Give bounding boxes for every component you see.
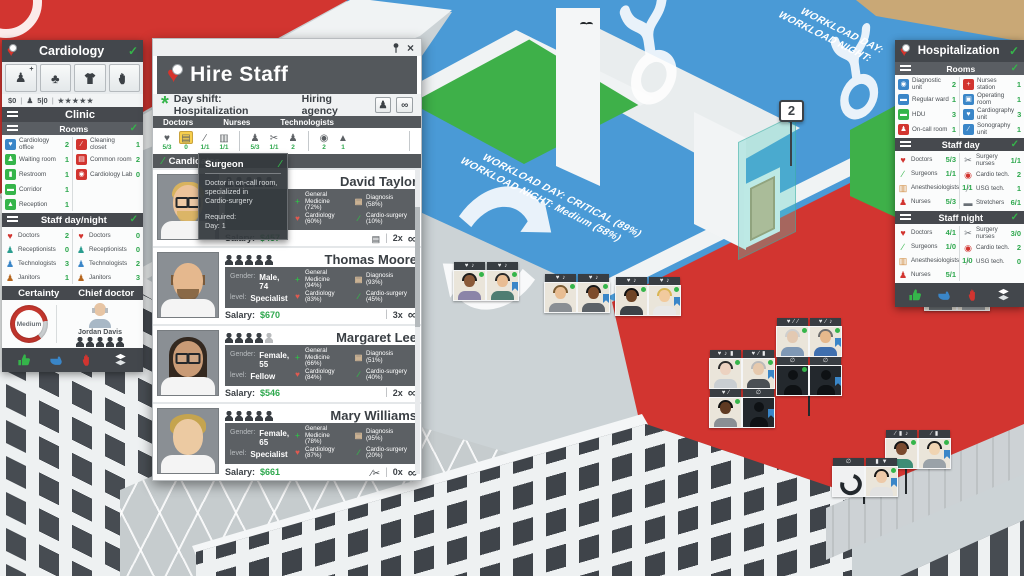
room-count: 1 (65, 170, 69, 179)
slot-icon: ♟ (287, 131, 300, 144)
mini-icon: ∅ (756, 389, 761, 397)
mini-icon: ♪ (724, 350, 727, 358)
staff-count: 5/3 (946, 155, 956, 164)
staff-type-slot[interactable]: ♥ 5/3 (159, 131, 175, 151)
staff-count: 1 (65, 273, 69, 282)
slot-count: 1/1 (219, 144, 228, 151)
staff-row: ♟ Nurses 5/3 (898, 195, 956, 208)
room-count-badge[interactable]: 2 (779, 100, 804, 122)
room-label: Cardiology Lab (90, 171, 133, 178)
skill: ♥ Cardiology(84%) (293, 368, 351, 383)
staff-card-icons: ∕▮ (919, 430, 950, 438)
bookmark-icon (603, 294, 609, 303)
status-dot (802, 367, 807, 372)
approve-button[interactable] (907, 287, 925, 303)
staff-icon: ♟ (5, 259, 15, 269)
slot-icon: ◉ (318, 131, 331, 144)
check-icon: ✓ (1011, 140, 1019, 150)
staff-count: 1/1 (1011, 156, 1021, 165)
mini-icon: ♥ (752, 350, 756, 358)
list-icon (900, 141, 911, 149)
staff-day-header[interactable]: Staff day ✓ (895, 138, 1024, 151)
room-label: Common room (90, 156, 133, 163)
staff-card-icons: ♥∕∕ (777, 318, 808, 326)
room-count: 1 (65, 185, 69, 194)
stop-hand-button[interactable] (80, 352, 98, 368)
candidate-bio: Gender:Male, 74 level:Specialist (230, 270, 288, 305)
staff-icon: ♟ (5, 245, 15, 255)
status-dot (891, 468, 896, 473)
staff-icon: ▬ (963, 198, 973, 208)
mini-icon: ♪ (633, 277, 636, 285)
mini-icon: ♥ (819, 318, 823, 326)
hire-staff-dialog: × ♥ Hire Staff * Day shift: Hospitalizat… (152, 38, 422, 481)
candidate-card[interactable]: Thomas Moore Gender:Male, 74 level:Speci… (153, 246, 421, 324)
layers-button[interactable] (112, 352, 130, 368)
mini-icon: ∕ (895, 430, 896, 438)
staff-row: ♥ Doctors 5/3 (898, 153, 956, 166)
hand-icon (118, 72, 131, 85)
staff-portrait[interactable] (616, 286, 647, 315)
slot-icon: ♥ (162, 131, 172, 144)
staff-cluster[interactable]: ♥∕∕∅♥∕♪∅ (777, 318, 841, 395)
uniform-button[interactable] (74, 64, 106, 92)
dialog-header: ♥ Hire Staff (157, 56, 417, 94)
room-row[interactable]: ▤ Common room 2 (76, 152, 140, 166)
room-row[interactable]: ▬ Corridor 1 (5, 182, 69, 196)
staff-label: Surgery nurses (976, 226, 1008, 240)
dialog-scrollbar[interactable] (415, 169, 420, 474)
slot-icon: ✂ (268, 131, 280, 144)
tab[interactable]: Doctors (163, 118, 193, 127)
staff-type-slot[interactable]: ∕ 1/1 (197, 131, 213, 151)
room-icon: ▬ (898, 109, 909, 120)
staff-row: ✂ Surgery nurses 1/1 (963, 153, 1021, 167)
rooms-list: ♥ Cardiology office 2 ♟ Waiting room 1 ▮… (2, 135, 143, 213)
staff-portrait[interactable] (810, 327, 841, 356)
staff-portrait[interactable] (833, 467, 864, 496)
staff-card-icons: ∅ (777, 357, 808, 365)
staff-count: 0 (136, 231, 140, 240)
staff-icon: ∕ (898, 242, 908, 252)
staff-label: Doctors (18, 232, 62, 239)
staff-count: 2 (1017, 243, 1021, 252)
staff-cluster[interactable]: ∅▮▼ (833, 458, 897, 496)
staff-type-slot[interactable]: ♟ 5/3 (247, 131, 263, 151)
staff-label: Stretchers (976, 199, 1008, 206)
skill: ∕ Cardio-surgery(40%) (354, 368, 412, 383)
staff-type-row: ♥ 5/3 ▤ 0 ∕ 1/1 ▥ 1/1 (153, 128, 421, 154)
staff-count: 2 (1017, 170, 1021, 179)
clinic-header[interactable]: Clinic (2, 107, 143, 122)
mini-icon: ▮ (935, 430, 938, 438)
room-label: Operating room (977, 92, 1014, 106)
skill: ▤ Diagnosis(58%) (354, 192, 412, 212)
staff-label: Surgeons (911, 243, 943, 250)
certainty-chief-header: Certainty Chief doctor (2, 286, 143, 300)
staff-portrait[interactable] (810, 366, 841, 395)
staff-count: 1/1 (946, 169, 956, 178)
staff-icon: ♥ (76, 231, 86, 241)
staff-card-icons: ♥♪▮ (710, 350, 741, 358)
room-count: 1 (1017, 95, 1021, 104)
mini-icon: ♥ (660, 277, 664, 285)
staff-header[interactable]: Staff day/night ✓ (2, 213, 143, 227)
room-row[interactable]: + Nurses station 1 (963, 77, 1021, 91)
rooms-list: ◉ Diagnostic unit 2 ▬ Regular ward 1 ▬ H… (895, 75, 1024, 138)
room-row[interactable]: ♥ Cardiology office 2 (5, 137, 69, 151)
staff-label: Cardio tech. (976, 171, 1014, 178)
staff-icon: ♥ (5, 231, 15, 241)
room-icon: ♥ (963, 109, 974, 120)
department-stats: $0 | ♟ 5|0 | ★★★★★ (2, 94, 143, 107)
game-screen: WORKLOAD DAY: CRITICAL (89%) WORKLOAD NI… (0, 0, 1024, 576)
room-count: 2 (65, 140, 69, 149)
mini-icon: ▼ (882, 458, 888, 466)
status-dot (802, 328, 807, 333)
staff-row: ♟ Janitors 3 (76, 271, 140, 284)
status-dot (735, 399, 740, 404)
skill: + General Medicine(94%) (293, 270, 351, 290)
staff-cluster[interactable]: ∕▮♪∕▮ (886, 430, 950, 468)
slot-count: 1/1 (269, 144, 278, 151)
staff-night-list: ♥ Doctors 4/1 ∕ Surgeons 1/0 ▥ Anesthesi… (895, 224, 1024, 283)
trait-icon: ▤ (372, 234, 381, 244)
staff-row: ♟ Technologists 3 (5, 257, 69, 270)
tech-slots: ◉ 2 ▲ 1 (316, 131, 351, 151)
slot-count: 1 (341, 144, 345, 151)
room-count: 0 (136, 170, 140, 179)
staff-row: ♟ Technologists 2 (76, 257, 140, 270)
room-label: Regular ward (912, 96, 949, 103)
status-dot (603, 284, 608, 289)
staff-count: 3 (136, 273, 140, 282)
hire-staff-icon: ♥ (167, 64, 180, 86)
scrollbar-thumb[interactable] (415, 207, 420, 327)
nurse-slots: ♟ 5/3 ✂ 1/1 ♟ 2 (247, 131, 301, 151)
staff-portrait[interactable] (919, 439, 950, 468)
staff-count: 5/3 (946, 197, 956, 206)
staff-card-icons: ♥∕♪ (810, 318, 841, 326)
bookmark-icon (944, 450, 950, 459)
pointer-button[interactable] (936, 287, 954, 303)
avatar (87, 302, 113, 328)
skill-icon: + (293, 433, 302, 440)
check-icon: ✓ (130, 215, 138, 225)
room-row[interactable]: ◉ Cardiology Lab 0 (76, 167, 140, 181)
check-icon: ✓ (1011, 64, 1019, 74)
hand-button[interactable] (109, 64, 141, 92)
tab[interactable]: Nurses (223, 118, 250, 127)
slot-count: 5/3 (162, 144, 171, 151)
skill: + General Medicine(72%) (293, 192, 351, 212)
staff-portrait[interactable] (886, 439, 917, 468)
staff-count: 2 (65, 231, 69, 240)
decoration-button[interactable]: ♣ (40, 64, 72, 92)
staff-count: 1 (1017, 184, 1021, 193)
staff-row: ✂ Surgery nurses 3/0 (963, 226, 1021, 240)
status-dot (911, 440, 916, 445)
room-icon: ∕ (76, 139, 87, 150)
skill-icon: + (293, 355, 302, 362)
room-label: On-call room (912, 126, 949, 133)
approve-button[interactable] (15, 352, 33, 368)
bookmark-icon (674, 297, 680, 306)
mini-icon: ∕ (825, 318, 826, 326)
room-icon: ▣ (963, 94, 974, 105)
staff-row: ♟ Nurses 5/1 (898, 268, 956, 281)
tooltip-required-label: Required: (205, 212, 281, 221)
list-icon (7, 216, 18, 224)
room-row[interactable]: ∕ Sonography unit 1 (963, 122, 1021, 136)
staff-card-icons: ♥♪ (649, 277, 680, 285)
chief-label: Chief doctor (75, 288, 139, 299)
staff-row: ♟ Janitors 1 (5, 271, 69, 284)
staff-icon: ∕ (898, 169, 908, 179)
check-icon: ✓ (1011, 213, 1019, 223)
panel-header[interactable]: ♥ Hospitalization ✓ (895, 40, 1024, 62)
room-row[interactable]: ▮ Restroom 1 (5, 167, 69, 181)
room-label: Nurses station (977, 77, 1014, 91)
department-panel-cardiology: ♥ Cardiology ✓ ♟+ ♣ $0 | ♟ 5|0 | ★★★★★ C… (2, 40, 143, 372)
chief-doctor[interactable]: Jordan Davis (57, 302, 143, 347)
tab[interactable]: Technologists (280, 118, 334, 127)
candidate-level-icons (225, 255, 273, 265)
room-icon: ▮ (5, 169, 16, 180)
skill: ∕ Cardio-surgery(10%) (354, 212, 412, 227)
candidate-card[interactable]: Mary Williams Gender:Female, 65 level:Sp… (153, 402, 421, 480)
staff-portrait[interactable] (777, 327, 808, 356)
candidate-salary-row: Salary: $546 | 2x ∞ (225, 386, 417, 399)
room-icon: ▤ (76, 154, 87, 165)
staff-card-icons: ♥♪ (578, 274, 609, 282)
skill-icon: ▤ (354, 355, 363, 362)
day-shift-icon: * (161, 99, 169, 111)
candidate-salary-row: Salary: $661 ∕✂ | 0x ∞ (225, 464, 417, 480)
staff-card-icons: ♥∕▮ (743, 350, 774, 358)
status-dot (835, 328, 840, 333)
room-icon: ▬ (898, 94, 909, 105)
room-label: Cardiology office (19, 137, 62, 151)
doctor-slots: ♥ 5/3 ▤ 0 ∕ 1/1 ▥ 1/1 (159, 131, 232, 151)
room-label: HDU (912, 111, 949, 118)
salary-value: $546 (260, 388, 280, 398)
panel-actions (2, 348, 143, 372)
staff-type-slot[interactable]: ♟ 2 (285, 131, 301, 151)
staff-portrait[interactable] (649, 286, 680, 315)
candidate-bio: Gender:Female, 65 level:Specialist (230, 426, 288, 461)
mini-icon: ∅ (846, 458, 851, 466)
mini-icon: ♪ (666, 277, 669, 285)
bird-icon (580, 22, 596, 30)
staff-night-header[interactable]: Staff night ✓ (895, 211, 1024, 224)
bookmark-icon (768, 409, 774, 418)
room-count: 1 (65, 155, 69, 164)
staff-label: Anesthesiologists (911, 184, 959, 191)
staff-row: ♟ Receptionists 0 (5, 243, 69, 256)
staff-portrait[interactable] (710, 398, 741, 427)
candidate-portrait (157, 408, 219, 474)
room-row[interactable]: ▬ HDU 3 (898, 107, 956, 121)
staff-label: Janitors (18, 274, 62, 281)
room-icon: ◉ (76, 169, 87, 180)
room-row[interactable]: ♥ Cardiography unit 3 (963, 107, 1021, 121)
staff-card-icons: ∅ (743, 389, 774, 397)
skill-icon: ♥ (293, 294, 302, 301)
staff-row: ♥ Doctors 4/1 (898, 226, 956, 239)
room-count: 2 (136, 155, 140, 164)
skill: ▤ Diagnosis(95%) (354, 426, 412, 446)
department-panel-hospitalization: ♥ Hospitalization ✓ Rooms ✓ ◉ Diagnostic… (895, 40, 1024, 307)
staff-portrait[interactable] (578, 283, 609, 312)
staff-button[interactable]: ♟+ (5, 64, 37, 92)
staff-label: Doctors (911, 229, 943, 236)
staff-row: ∕ USG tech. 0 (963, 255, 1021, 268)
skill-icon: ∕ (354, 450, 363, 457)
mask-count: 0x (393, 467, 403, 477)
skill-icon: ▤ (354, 199, 363, 206)
room-row[interactable]: ▣ Operating room 1 (963, 92, 1021, 106)
staff-cluster[interactable]: ♥♪♥♪ (616, 277, 680, 315)
panel-header[interactable]: ♥ Cardiology ✓ (2, 40, 143, 62)
skill-icon: ▤ (354, 277, 363, 284)
stethoscope-icon (582, 0, 718, 138)
stop-hand-button[interactable] (965, 287, 983, 303)
salary-value: $661 (260, 467, 280, 477)
staff-count: 0 (136, 245, 140, 254)
scalpel-icon: ∕ (279, 159, 281, 170)
room-row[interactable]: ♟ Waiting room 1 (5, 152, 69, 166)
slot-count: 2 (322, 144, 326, 151)
candidate-name: Thomas Moore (273, 252, 417, 267)
rooms-header[interactable]: Rooms ✓ (2, 122, 143, 135)
candidate-name: David Taylor (273, 174, 417, 189)
mini-icon: ▮ (730, 350, 733, 358)
mini-icon: ∕ (728, 389, 729, 397)
room-row[interactable]: ∕ Cleaning closet 1 (76, 137, 140, 151)
agency-mask-button[interactable]: ∞ (396, 97, 413, 113)
room-count: 1 (65, 200, 69, 209)
skill: ♥ Cardiology(83%) (293, 290, 351, 305)
staff-label: Doctors (911, 156, 943, 163)
floor-icon-arc (0, 0, 42, 38)
staff-row: ▥ Anesthesiologists 1/0 (898, 254, 956, 267)
agency-person-button[interactable]: ♟ (375, 97, 392, 113)
staff-count: 5/1 (946, 270, 956, 279)
mini-icon: ∕ (931, 430, 932, 438)
close-icon[interactable]: × (407, 42, 414, 54)
staff-type-slot[interactable]: ▤ 0 (178, 131, 194, 151)
candidate-info: Gender:Female, 55 level:Fellow + General… (225, 345, 417, 386)
staff-portrait[interactable] (777, 366, 808, 395)
mini-icon: ♥ (589, 274, 593, 282)
room-label: Restroom (19, 171, 62, 178)
chief-level (76, 337, 124, 347)
room-label: Cardiography unit (977, 107, 1014, 121)
room-count: 1 (952, 95, 956, 104)
layers-button[interactable] (994, 287, 1012, 303)
staff-icon: ♥ (898, 155, 908, 165)
staff-label: Nurses (911, 198, 943, 205)
staff-day-list: ♥ Doctors 5/3 ∕ Surgeons 1/1 ▥ Anesthesi… (895, 151, 1024, 211)
placement-preview (738, 114, 796, 260)
staff-portrait[interactable] (866, 467, 897, 496)
staff-type-slot[interactable]: ◉ 2 (316, 131, 332, 151)
mini-icon: ▮ (899, 430, 902, 438)
status-dot (735, 360, 740, 365)
badge-pointer (790, 122, 792, 166)
room-icon: ♟ (5, 154, 16, 165)
pin-icon[interactable] (392, 42, 400, 54)
staff-icon: ▥ (898, 256, 908, 266)
staff-card-icons: ∅ (810, 357, 841, 365)
room-row[interactable]: ▬ Regular ward 1 (898, 92, 956, 106)
panel-actions (895, 283, 1024, 307)
mini-icon: ♥ (627, 277, 631, 285)
shift-label: Day shift: Hospitalization (174, 93, 297, 117)
room-icon: ♟ (898, 124, 909, 135)
staff-type-slot[interactable]: ▲ 1 (335, 131, 351, 151)
room-count: 2 (952, 80, 956, 89)
candidate-name: Mary Williams (273, 408, 417, 423)
staff-type-slot[interactable]: ✂ 1/1 (266, 131, 282, 151)
check-icon: ✓ (130, 124, 138, 134)
rooms-header[interactable]: Rooms ✓ (895, 62, 1024, 75)
staff-portrait[interactable] (710, 359, 741, 388)
staff-label: Nurses (911, 271, 943, 278)
staff-portrait[interactable] (743, 359, 774, 388)
staff-icon: ♟ (76, 259, 86, 269)
scalpel-icon: ∕ (162, 156, 164, 167)
slot-count: 5/3 (250, 144, 259, 151)
staff-card-icons: ∅ (833, 458, 864, 466)
skill-icon: ∕ (354, 216, 363, 223)
candidate-card[interactable]: Margaret Lee Gender:Female, 55 level:Fel… (153, 324, 421, 402)
room-icon: ♥ (5, 139, 16, 150)
bookmark-icon (835, 338, 841, 347)
room-row[interactable]: ◉ Diagnostic unit 2 (898, 77, 956, 91)
staff-label: Technologists (18, 260, 62, 267)
rating-stars: ★★★★★ (58, 97, 94, 105)
pointer-button[interactable] (47, 352, 65, 368)
mini-icon: ▮ (762, 350, 765, 358)
room-row[interactable]: ▲ Reception 1 (5, 197, 69, 211)
staff-label: USG tech. (976, 258, 1014, 265)
candidate-level-icons (225, 411, 273, 421)
room-label: Sonography unit (977, 122, 1014, 136)
staff-icon: ♟ (5, 273, 15, 283)
panel-title: Hospitalization (912, 45, 1005, 57)
staff-icon: ♟ (76, 273, 86, 283)
staff-icon: ∕ (963, 257, 973, 267)
slot-icon: ♟ (249, 131, 262, 144)
staff-ratio: 5|0 (37, 96, 47, 105)
room-icon: ∕ (963, 124, 974, 135)
staff-row: ♥ Doctors 0 (76, 229, 140, 242)
slot-icon: ▲ (336, 131, 350, 144)
panel-title: Cardiology (19, 44, 124, 58)
staff-portrait[interactable] (743, 398, 774, 427)
room-row[interactable]: ♟ On-call room 1 (898, 122, 956, 136)
staff-row: ∕ Surgeons 1/0 (898, 240, 956, 253)
staff-type-slot[interactable]: ▥ 1/1 (216, 131, 232, 151)
staff-icon: ♟ (898, 197, 908, 207)
staff-count: 1/0 (946, 242, 956, 251)
skill-icon: ♥ (293, 450, 302, 457)
tooltip-title: Surgeon (205, 159, 244, 170)
candidate-level-icons (225, 333, 273, 343)
list-icon (7, 111, 18, 119)
